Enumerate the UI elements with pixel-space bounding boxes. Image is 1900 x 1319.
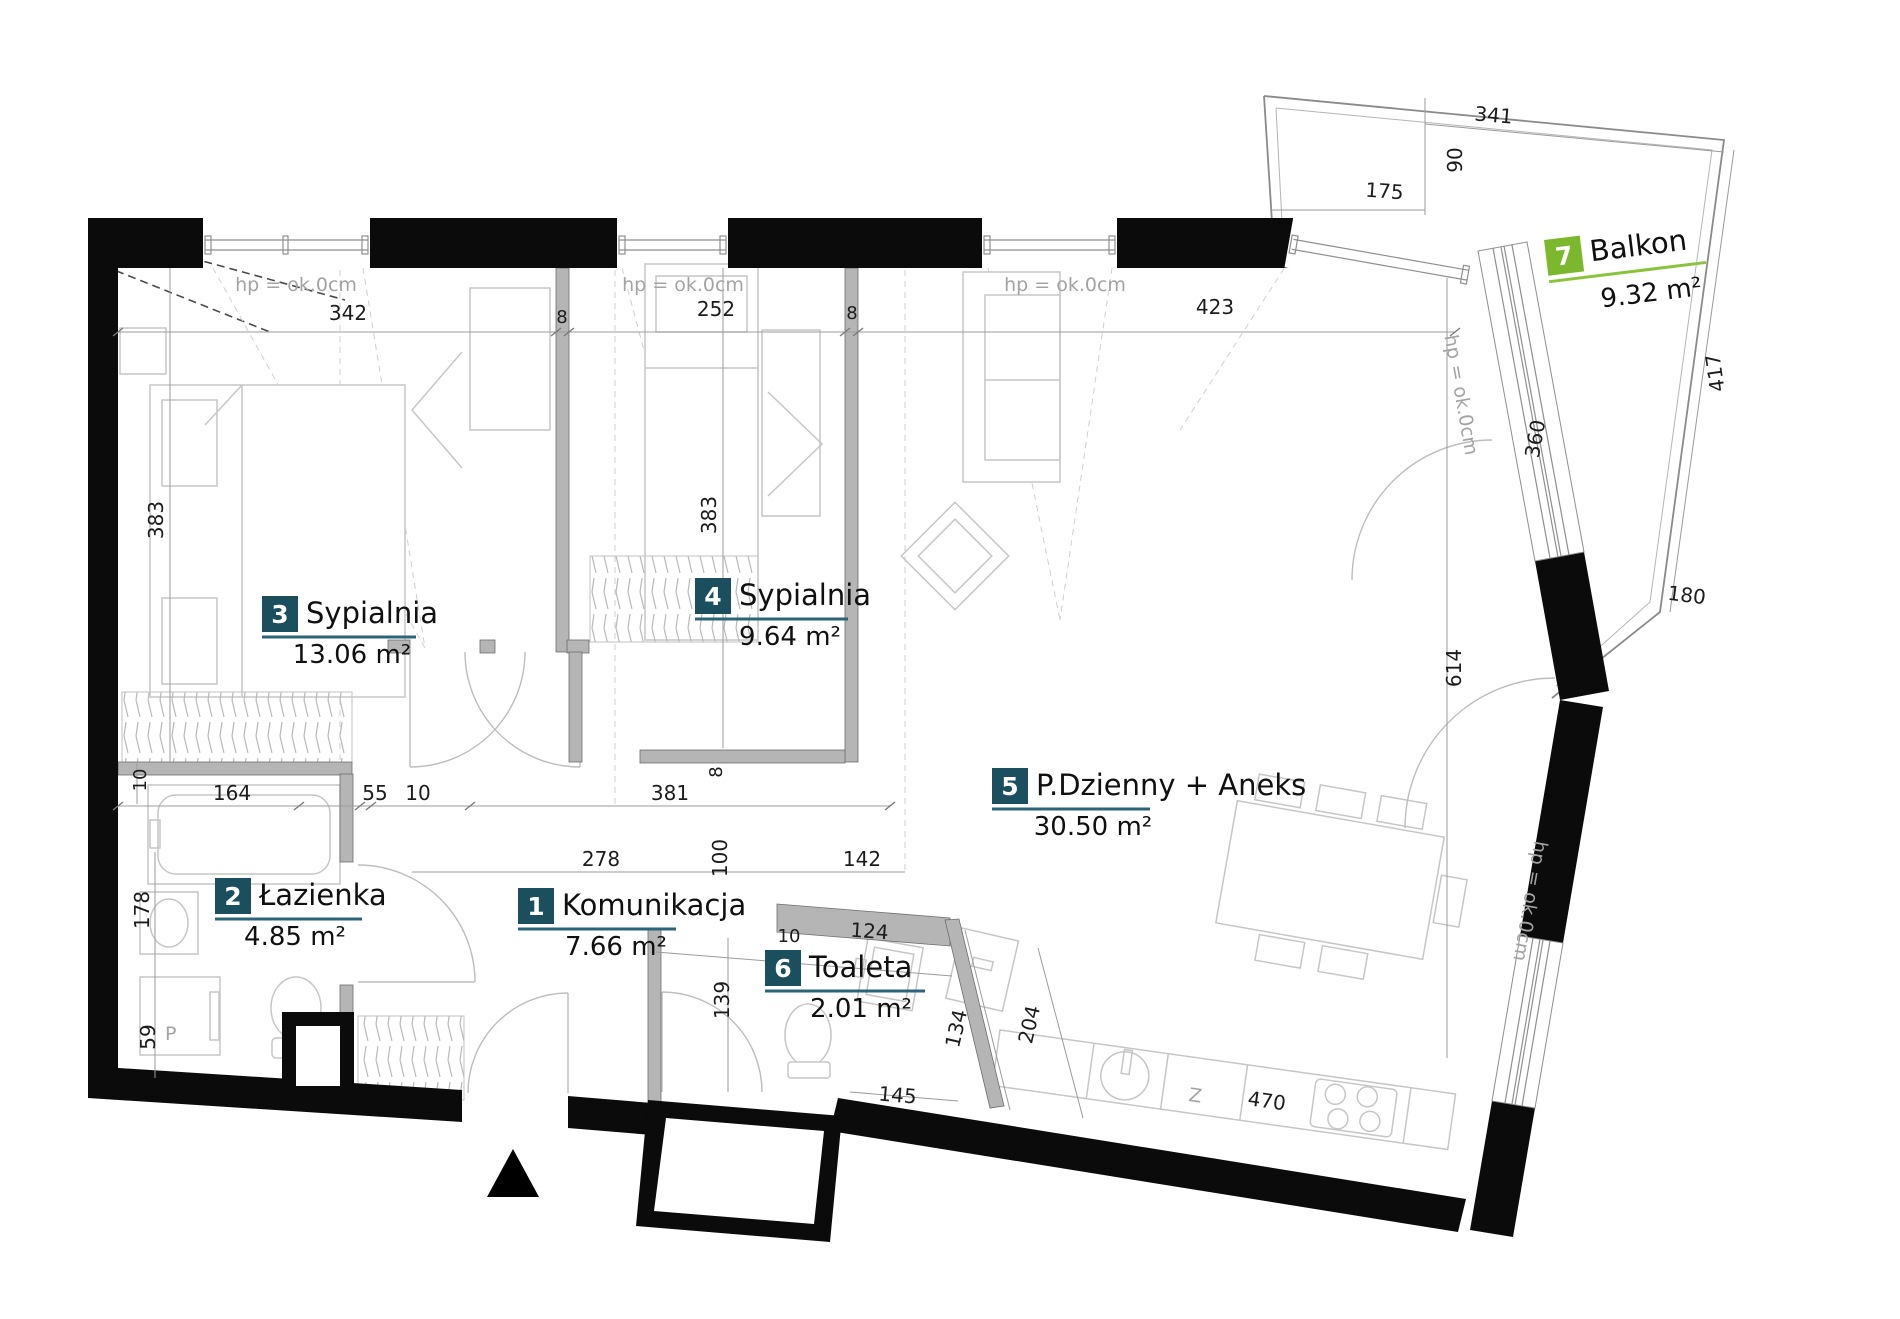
note-hp-4: hp = ok.0cm: [1439, 333, 1482, 457]
room-number: 6: [774, 954, 791, 983]
balcony-outline: [1264, 96, 1724, 698]
kitchen-counter: Z 470: [992, 1030, 1455, 1149]
room-area: 2.01 m²: [810, 994, 912, 1024]
wardrobe-room4: [590, 556, 758, 642]
room-number: 2: [224, 882, 241, 911]
room-name: Sypialnia: [739, 578, 871, 612]
room-area: 9.64 m²: [739, 622, 841, 652]
room-name: Sypialnia: [306, 596, 438, 630]
dim-383-mid: 383: [697, 496, 721, 534]
room-name: Komunikacja: [562, 888, 746, 922]
room-label-balkon: 7 Balkon 9.32 m²: [1544, 221, 1711, 321]
dim-10-bath: 10: [405, 781, 430, 805]
room-area: 7.66 m²: [565, 932, 667, 962]
note-hp-1: hp = ok.0cm: [235, 274, 357, 296]
door-balcony: [1352, 440, 1492, 580]
dining-table: [1211, 771, 1479, 994]
room-area: 13.06 m²: [293, 640, 411, 670]
dim-175: 175: [1365, 178, 1405, 205]
dim-134: 134: [940, 1007, 972, 1050]
dim-145: 145: [878, 1081, 918, 1108]
room-name: Balkon: [1588, 223, 1689, 269]
desk-room4: [762, 330, 822, 516]
note-hp-2: hp = ok.0cm: [622, 274, 744, 296]
dim-8-hall: 8: [706, 766, 727, 777]
dim-252: 252: [697, 297, 735, 321]
window-room4: [619, 236, 726, 254]
room-number: 7: [1554, 241, 1575, 272]
room-label-komunikacja: 1 Komunikacja 7.66 m²: [518, 888, 746, 962]
room-name: P.Dzienny + Aneks: [1036, 768, 1306, 802]
window-balcony-door: [1478, 242, 1584, 561]
dim-178: 178: [130, 891, 154, 929]
dim-59: 59: [136, 1024, 160, 1049]
window-living: [984, 236, 1115, 254]
room-name: Toaleta: [808, 950, 912, 984]
door-terrace: [1405, 678, 1555, 828]
dim-10-wc: 10: [778, 926, 801, 947]
note-hp-3: hp = ok.0cm: [1004, 274, 1126, 296]
floor-plan-svg: Z 470 P: [0, 0, 1900, 1319]
dim-341: 341: [1474, 101, 1514, 128]
door-entry: [468, 993, 568, 1093]
dim-417: 417: [1701, 352, 1730, 393]
dim-423: 423: [1196, 295, 1234, 319]
nightstand: [120, 328, 166, 374]
dim-278: 278: [582, 847, 620, 871]
dim-614: 614: [1442, 649, 1466, 687]
door-room4: [465, 652, 580, 767]
window-room3: [205, 236, 368, 254]
room-label-lazienka: 2 Łazienka 4.85 m²: [215, 878, 387, 952]
room-area: 4.85 m²: [244, 922, 346, 952]
dim-342: 342: [329, 301, 367, 325]
door-room3: [410, 652, 525, 767]
entrance-arrow-icon: [487, 1149, 539, 1197]
desk-room3: [412, 288, 550, 468]
dim-139: 139: [710, 981, 734, 1019]
window-corner: [1284, 219, 1478, 300]
room-number: 5: [1001, 772, 1018, 801]
dim-124: 124: [850, 918, 890, 945]
sofa: [963, 272, 1060, 482]
washer-symbol: P: [165, 1023, 176, 1045]
room-number: 3: [271, 600, 288, 629]
dim-180: 180: [1666, 581, 1707, 609]
room-area: 30.50 m²: [1034, 812, 1152, 842]
room-area: 9.32 m²: [1599, 272, 1704, 314]
dim-100: 100: [708, 839, 732, 877]
room-number: 4: [704, 582, 721, 611]
shaft-wc: [654, 1118, 824, 1224]
dim-164: 164: [213, 781, 251, 805]
shaft-hall: [282, 1012, 354, 1100]
coffee-table: [901, 502, 1008, 609]
dim-90: 90: [1443, 147, 1467, 172]
wardrobe-room3: [122, 692, 352, 764]
dim-142: 142: [843, 847, 881, 871]
dim-8b: 8: [846, 303, 857, 324]
dim-8a: 8: [556, 307, 567, 328]
dim-381: 381: [651, 781, 689, 805]
dim-383-left: 383: [144, 501, 168, 539]
room-number: 1: [527, 892, 544, 921]
room-name: Łazienka: [258, 878, 387, 912]
dim-10-left: 10: [130, 769, 151, 792]
floor-plan: Z 470 P: [0, 0, 1900, 1319]
dim-55: 55: [362, 781, 387, 805]
